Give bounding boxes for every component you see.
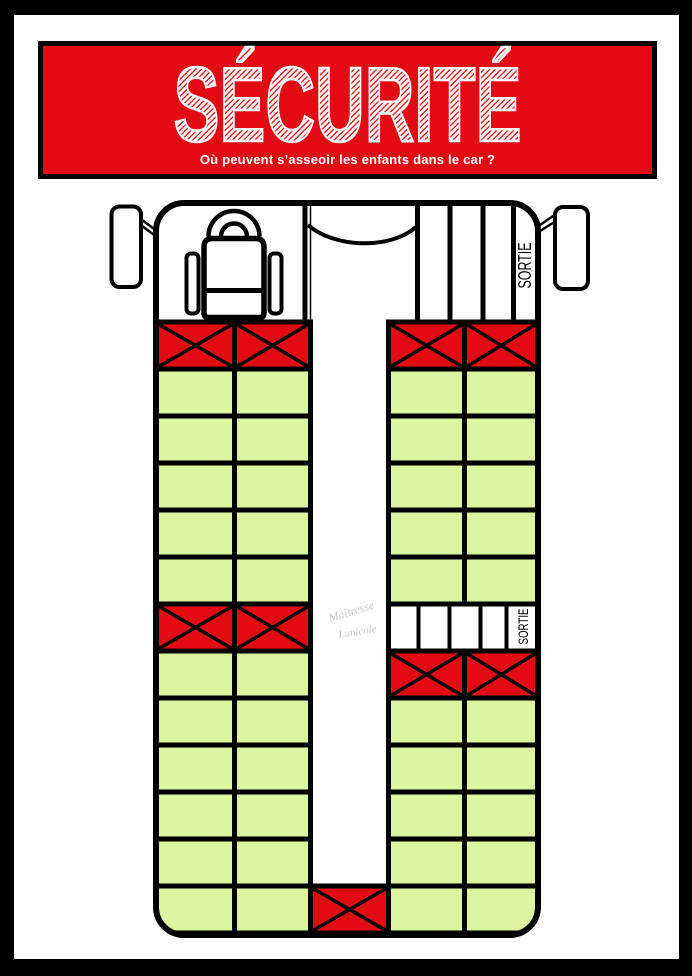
svg-text:Où peuvent s’asseoir les enfan: Où peuvent s’asseoir les enfants dans le… bbox=[200, 152, 495, 167]
svg-text:SORTIE: SORTIE bbox=[515, 609, 531, 645]
svg-text:SORTIE: SORTIE bbox=[515, 243, 535, 289]
svg-text:SÉCURITÉ: SÉCURITÉ bbox=[174, 46, 522, 164]
